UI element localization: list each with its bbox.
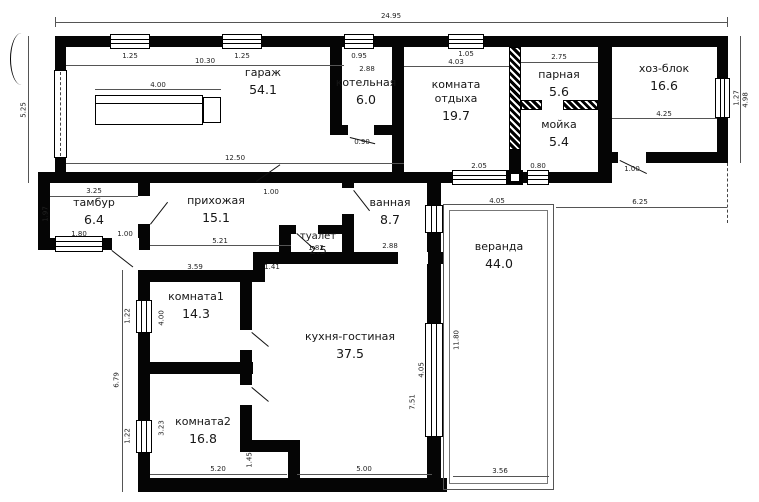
dim-window-rest: 2.05 xyxy=(471,163,487,170)
dim-door-tambour: 1.00 xyxy=(117,231,133,238)
window-room1-west xyxy=(136,300,152,333)
room-label-veranda: веранда 44.0 xyxy=(459,240,539,271)
dim-door-utility: 1.00 xyxy=(624,166,640,173)
room-name: гараж xyxy=(203,66,323,80)
room-name: ванная xyxy=(355,196,425,210)
dim-window-1: 1.25 xyxy=(122,53,138,60)
wall-middle xyxy=(38,172,612,183)
dim-garage-top: 10.30 xyxy=(195,58,215,65)
room-name: парная xyxy=(524,68,594,82)
dim-tick-left xyxy=(55,17,56,27)
dim-boiler-door: 0.90 xyxy=(354,139,370,146)
wall-connector-block xyxy=(253,252,265,282)
garage-workbench xyxy=(95,95,203,125)
wall-room1-east-b xyxy=(240,350,252,362)
room-label-rest: комната отдыха 19.7 xyxy=(421,78,491,123)
room-area: 2.5 xyxy=(290,244,346,258)
room-label-hall: прихожая 15.1 xyxy=(171,194,261,225)
wall-room2-east-a xyxy=(240,374,252,385)
dim-line-veranda-bottom xyxy=(453,476,549,477)
room-label-wash: мойка 5.4 xyxy=(524,118,594,149)
door-room2 xyxy=(251,387,268,402)
dim-right-offset: 6.25 xyxy=(632,199,648,206)
wall-room1-top xyxy=(138,270,253,282)
room-name: комната2 xyxy=(163,415,243,429)
window-utility-east xyxy=(715,78,730,118)
dim-line-left-bottom xyxy=(122,270,123,492)
room-label-steam: парная 5.6 xyxy=(524,68,594,99)
dim-veranda-bottom: 3.56 xyxy=(492,468,508,475)
dim-window-room2: 1.22 xyxy=(125,428,132,444)
wall-kitchen-top-b xyxy=(428,252,443,264)
dim-kitchen-height: 7.51 xyxy=(410,394,417,410)
dim-boiler-top: 2.88 xyxy=(359,66,375,73)
window-wash-south xyxy=(527,170,549,185)
window-rest-south xyxy=(452,170,507,185)
wall-room1-room2 xyxy=(138,362,253,374)
wall-tambour-south-c xyxy=(139,238,150,250)
wall-utility-south-a xyxy=(612,152,618,163)
dim-line-utility xyxy=(612,118,717,119)
room-name: кухня-гостиная xyxy=(290,330,410,344)
dim-hall-bottom: 5.21 xyxy=(212,238,228,245)
room-area: 6.4 xyxy=(54,212,134,228)
dim-tambour-height: 1.97 xyxy=(43,206,50,222)
wall-room2-step-h xyxy=(240,440,300,452)
window-tambour xyxy=(55,236,103,252)
wall-sauna-hatched-h1 xyxy=(521,100,542,110)
wall-boiler-south-a xyxy=(342,125,348,135)
room-area: 19.7 xyxy=(421,108,491,124)
garage-workbench-edge xyxy=(96,103,202,104)
dim-window-4: 1.05 xyxy=(458,51,474,58)
room-label-toilet: туалет 2.5 xyxy=(290,231,346,257)
room-area: 5.6 xyxy=(524,84,594,100)
room-area: 8.7 xyxy=(355,212,425,228)
door-tambour-exit xyxy=(111,250,133,267)
dim-window-3: 0.95 xyxy=(351,53,367,60)
dim-steam-top: 2.75 xyxy=(551,54,567,61)
dim-line-right-offset xyxy=(556,207,727,208)
dim-tick-right xyxy=(727,17,728,27)
dim-line-hall xyxy=(150,245,291,246)
wall-tambour-hall-a xyxy=(138,183,150,196)
wall-tambour-south-a xyxy=(38,238,55,250)
room-area: 16.8 xyxy=(163,431,243,447)
wall-bath-left-a xyxy=(342,183,354,188)
dim-veranda-height: 11.80 xyxy=(454,330,461,350)
wall-sauna-base xyxy=(509,150,521,172)
room-label-bath: ванная 8.7 xyxy=(355,196,425,227)
dim-window-2: 1.25 xyxy=(234,53,250,60)
window-kitchen-east xyxy=(425,323,443,437)
dim-utility-top: 4.25 xyxy=(656,111,672,118)
window-garage-1 xyxy=(110,34,150,49)
room-area: 6.0 xyxy=(324,92,408,108)
door-room1 xyxy=(251,332,268,347)
dim-garage-bottom: 12.50 xyxy=(225,155,245,162)
room-area: 15.1 xyxy=(171,210,261,226)
dim-left-top: 5.25 xyxy=(21,102,28,118)
room-name: хоз-блок xyxy=(624,62,704,76)
wall-top xyxy=(55,36,728,47)
room-name: котельная xyxy=(324,76,408,90)
garage-workbench-box xyxy=(203,97,221,123)
door-tambour-hall xyxy=(150,202,168,225)
wall-tambour-south-b xyxy=(103,238,112,250)
dim-line-total-width xyxy=(55,22,728,23)
window-garage-2 xyxy=(222,34,262,49)
wall-sauna-hatched-v xyxy=(509,47,521,150)
wall-boiler-south-b xyxy=(374,125,392,135)
dim-kitchen-window: 4.05 xyxy=(419,362,426,378)
dim-room2-bottom: 5.20 xyxy=(210,466,226,473)
room-area: 14.3 xyxy=(156,306,236,322)
dim-line-steam xyxy=(521,62,598,63)
dim-line-garage-bottom xyxy=(66,163,404,164)
window-bath-east xyxy=(425,205,443,233)
dim-step: 1.45 xyxy=(247,452,254,468)
dim-total-width: 24.95 xyxy=(381,13,401,20)
room-label-boiler: котельная 6.0 xyxy=(324,76,408,107)
window-boiler xyxy=(344,34,374,49)
room-area: 16.6 xyxy=(624,78,704,94)
dim-room1-top: 3.59 xyxy=(187,264,203,271)
wall-utility-south-b xyxy=(646,152,728,163)
dim-line-room2 xyxy=(150,474,287,475)
dim-window-right: 1.27 xyxy=(734,90,741,106)
dim-window-wash: 0.80 xyxy=(530,163,546,170)
wall-room1-east-a xyxy=(240,282,252,330)
stove-symbol xyxy=(507,170,523,185)
room-name: веранда xyxy=(459,240,539,254)
room-label-kitchen: кухня-гостиная 37.5 xyxy=(290,330,410,361)
entry-swing-arc xyxy=(10,33,33,85)
room-name: комната1 xyxy=(156,290,236,304)
dim-bench: 4.00 xyxy=(150,82,166,89)
room-area: 5.4 xyxy=(524,134,594,150)
dim-line-left-top xyxy=(28,36,29,183)
room-name: прихожая xyxy=(171,194,261,208)
dim-tambour-top: 3.25 xyxy=(86,188,102,195)
room-name: комната отдыха xyxy=(421,78,491,106)
dim-door-garage-hall: 1.00 xyxy=(263,189,279,196)
dim-nook: 1.41 xyxy=(264,264,280,271)
dim-line-kitchen xyxy=(297,474,432,475)
window-rest xyxy=(448,34,484,49)
room-name: тамбур xyxy=(54,196,134,210)
garage-gate-dashed-line xyxy=(60,72,61,156)
dim-bath-bottom: 2.88 xyxy=(382,243,398,250)
dim-line-rest xyxy=(404,66,509,67)
wall-tambour-hall-b xyxy=(138,224,150,238)
floor-plan: 24.95 10.30 12.50 4.00 4.03 2.75 4.25 3.… xyxy=(0,0,759,502)
room-name: туалет xyxy=(290,231,346,244)
dim-window-room1: 1.22 xyxy=(125,308,132,324)
room-label-room1: комната1 14.3 xyxy=(156,290,236,321)
window-room2-west xyxy=(136,420,152,453)
wall-wash-utility xyxy=(598,36,612,183)
room-area: 54.1 xyxy=(203,82,323,98)
room-label-garage: гараж 54.1 xyxy=(203,66,323,97)
room-area: 37.5 xyxy=(290,346,410,362)
room-area: 44.0 xyxy=(459,256,539,272)
room-label-tambour: тамбур 6.4 xyxy=(54,196,134,227)
room-label-room2: комната2 16.8 xyxy=(163,415,243,446)
wall-bath-left-b xyxy=(342,214,354,225)
wall-sauna-hatched-h2 xyxy=(563,100,598,110)
dim-kitchen-bottom: 5.00 xyxy=(356,466,372,473)
dim-left-bottom: 6.79 xyxy=(114,372,121,388)
dim-rest-top: 4.03 xyxy=(448,59,464,66)
dim-window-tambour: 1.80 xyxy=(71,231,87,238)
room-label-utility: хоз-блок 16.6 xyxy=(624,62,704,93)
dim-right-height: 4.98 xyxy=(743,92,750,108)
veranda-extent-dashed-line xyxy=(727,163,728,223)
wall-bottom xyxy=(138,478,447,492)
dim-veranda-top: 4.05 xyxy=(489,198,505,205)
room-name: мойка xyxy=(524,118,594,132)
